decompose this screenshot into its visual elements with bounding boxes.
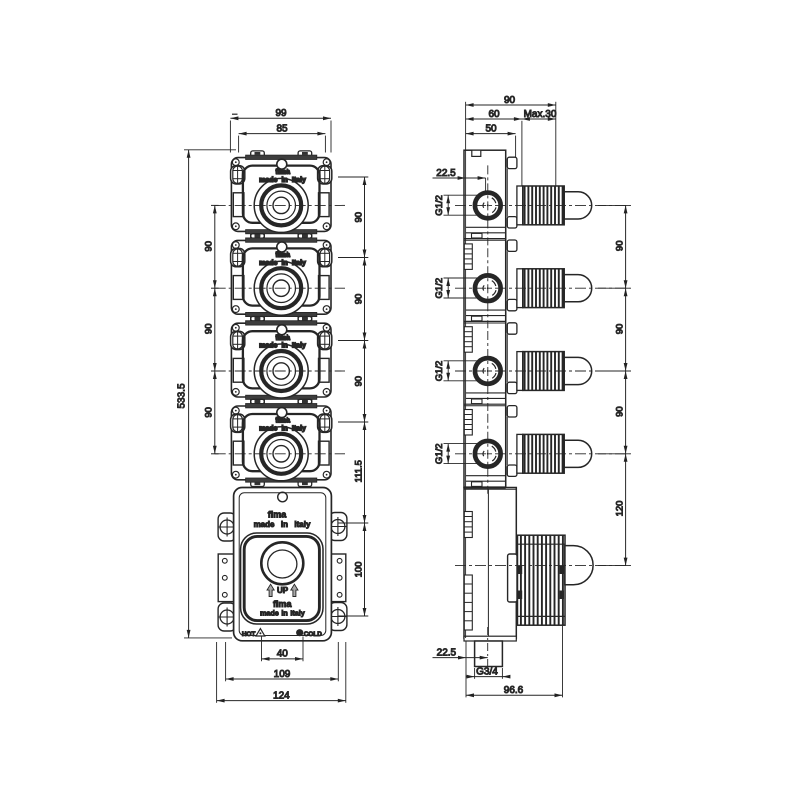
svg-text:G1/2: G1/2 xyxy=(434,195,445,216)
svg-text:G3/4: G3/4 xyxy=(476,666,498,677)
svg-text:100: 100 xyxy=(353,562,364,578)
svg-text:120: 120 xyxy=(614,501,625,517)
svg-text:G1/2: G1/2 xyxy=(434,278,445,299)
svg-text:533.5: 533.5 xyxy=(176,383,187,408)
svg-text:90: 90 xyxy=(614,324,625,335)
svg-text:85: 85 xyxy=(276,123,288,134)
svg-text:90: 90 xyxy=(204,407,215,418)
svg-text:90: 90 xyxy=(353,212,364,223)
svg-text:109: 109 xyxy=(274,669,291,680)
svg-text:UP: UP xyxy=(277,586,289,595)
svg-text:fima: fima xyxy=(273,599,293,609)
svg-text:G1/2: G1/2 xyxy=(434,443,445,464)
svg-text:22.5: 22.5 xyxy=(436,168,456,179)
svg-text:96.6: 96.6 xyxy=(504,685,524,696)
svg-text:fima: fima xyxy=(268,510,288,520)
svg-text:60: 60 xyxy=(488,109,500,120)
svg-text:90: 90 xyxy=(204,324,215,335)
svg-text:90: 90 xyxy=(614,241,625,252)
svg-text:111.5: 111.5 xyxy=(353,460,364,482)
svg-text:90: 90 xyxy=(614,406,625,417)
svg-text:G1/2: G1/2 xyxy=(434,361,445,382)
svg-text:22.5: 22.5 xyxy=(437,647,457,658)
svg-text:90: 90 xyxy=(504,95,516,106)
svg-text:50: 50 xyxy=(485,124,497,135)
svg-text:90: 90 xyxy=(353,294,364,305)
svg-text:124: 124 xyxy=(273,690,290,701)
svg-text:90: 90 xyxy=(204,241,215,252)
svg-text:90: 90 xyxy=(353,376,364,387)
svg-text:40: 40 xyxy=(277,649,289,660)
svg-text:COLD: COLD xyxy=(304,631,322,638)
svg-text:made in Italy: made in Italy xyxy=(260,609,305,618)
svg-text:HOT: HOT xyxy=(242,631,256,638)
svg-text:99: 99 xyxy=(275,108,287,119)
svg-text:made in Italy: made in Italy xyxy=(254,520,311,529)
svg-text:Max.30: Max.30 xyxy=(524,109,557,120)
